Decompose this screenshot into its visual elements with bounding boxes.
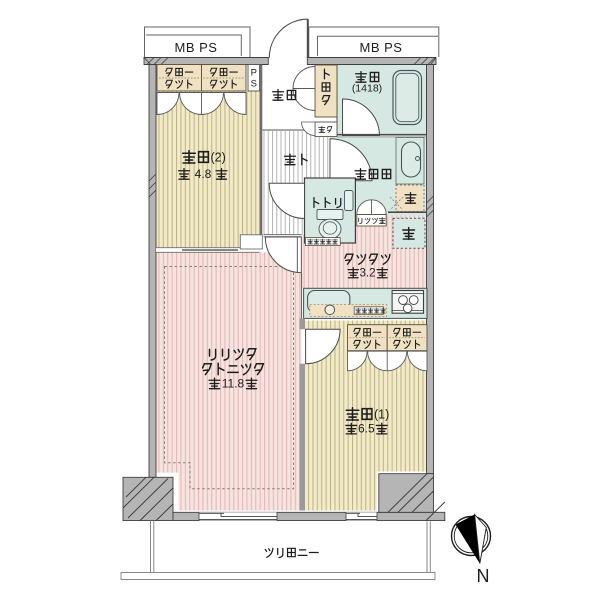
svg-text:P: P bbox=[251, 68, 257, 79]
svg-text:N: N bbox=[477, 566, 490, 586]
svg-text:MB PS: MB PS bbox=[360, 40, 403, 55]
svg-text:6.5: 6.5 bbox=[358, 422, 375, 436]
svg-text:4.8: 4.8 bbox=[195, 167, 212, 181]
svg-text:MB PS: MB PS bbox=[175, 40, 218, 55]
svg-text:11.8: 11.8 bbox=[222, 377, 245, 391]
svg-text:(2): (2) bbox=[211, 151, 226, 165]
svg-text:S: S bbox=[251, 79, 257, 90]
svg-text:3.2: 3.2 bbox=[360, 268, 376, 280]
svg-text:(1): (1) bbox=[374, 408, 389, 422]
svg-text:(1418): (1418) bbox=[352, 83, 382, 95]
